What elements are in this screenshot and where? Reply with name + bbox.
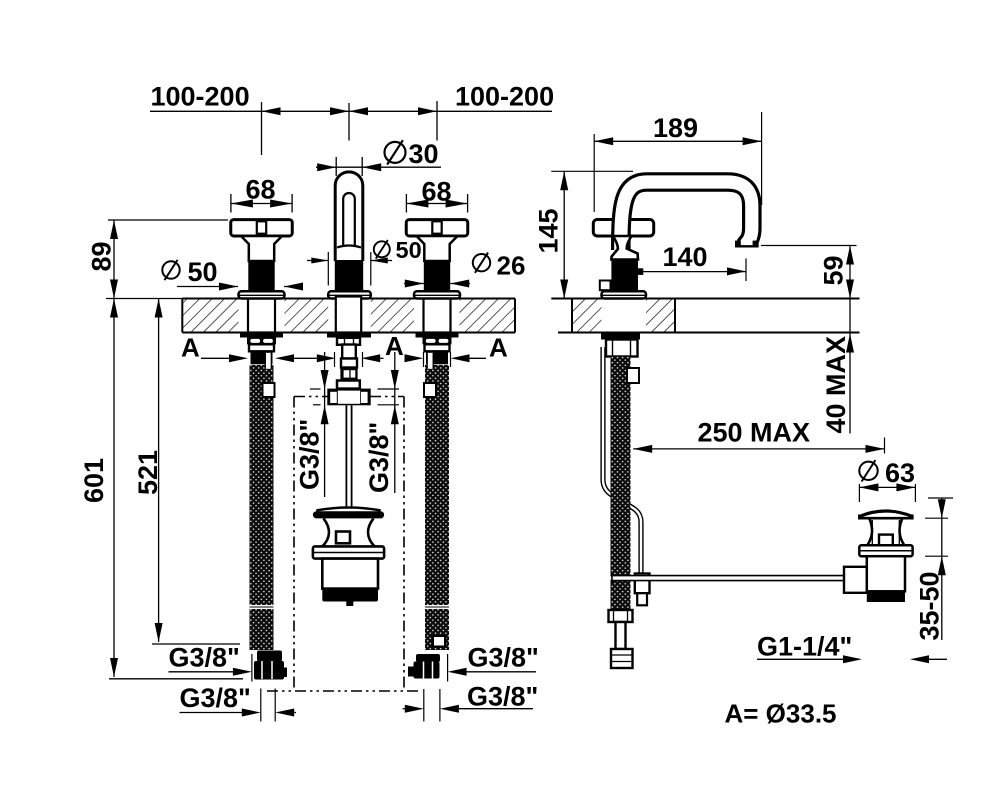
svg-text:30: 30 (409, 139, 439, 169)
svg-text:50: 50 (396, 237, 422, 263)
svg-text:59: 59 (819, 255, 849, 285)
svg-text:A: A (181, 333, 200, 363)
svg-text:100-200: 100-200 (455, 82, 554, 112)
svg-text:40 MAX: 40 MAX (821, 336, 851, 434)
svg-text:100-200: 100-200 (151, 82, 250, 112)
svg-text:G3/8": G3/8" (169, 643, 240, 673)
svg-text:G3/8": G3/8" (364, 422, 394, 493)
svg-text:189: 189 (653, 113, 698, 143)
svg-text:50: 50 (188, 257, 218, 287)
svg-text:G3/8": G3/8" (180, 683, 251, 713)
svg-text:89: 89 (87, 241, 117, 271)
svg-text:A= Ø33.5: A= Ø33.5 (725, 699, 837, 729)
svg-text:63: 63 (885, 458, 915, 488)
svg-text:G3/8": G3/8" (467, 682, 538, 712)
svg-text:26: 26 (497, 251, 526, 281)
svg-text:G3/8": G3/8" (468, 643, 539, 673)
svg-text:35-50: 35-50 (915, 571, 945, 640)
svg-text:250 MAX: 250 MAX (698, 418, 811, 448)
svg-text:601: 601 (79, 458, 109, 503)
svg-text:G3/8": G3/8" (295, 419, 325, 490)
svg-text:68: 68 (246, 175, 276, 205)
svg-text:G1-1/4": G1-1/4" (757, 632, 852, 662)
svg-text:68: 68 (422, 177, 452, 207)
svg-text:145: 145 (534, 208, 564, 253)
svg-text:521: 521 (133, 450, 163, 495)
svg-text:A: A (489, 333, 508, 363)
svg-text:140: 140 (663, 242, 708, 272)
